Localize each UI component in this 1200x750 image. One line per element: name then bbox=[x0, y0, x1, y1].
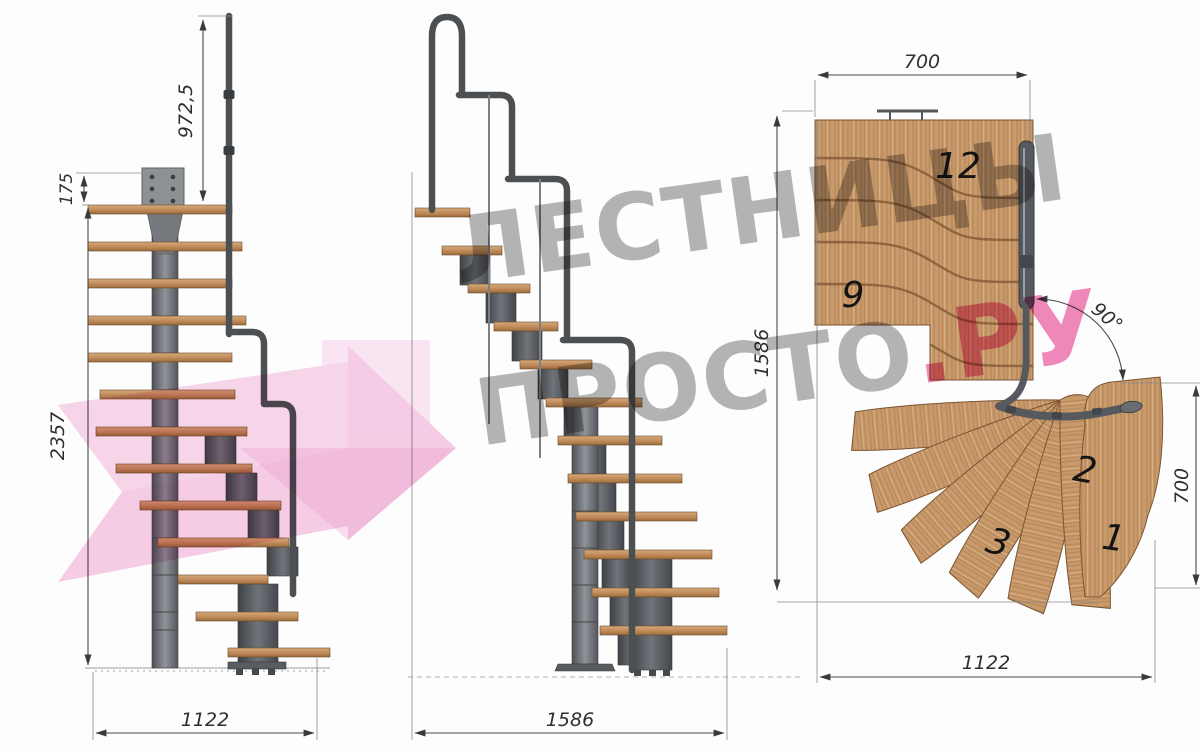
rail-collar bbox=[224, 146, 235, 155]
rail-collar bbox=[224, 90, 235, 99]
staircase-technical-drawing: 972,5 175 2357 1122 bbox=[0, 0, 1200, 750]
dim-label: 1586 bbox=[546, 709, 594, 731]
dim-label: 1122 bbox=[181, 709, 229, 731]
base-flange bbox=[228, 662, 286, 669]
drawing-layer: 972,5 175 2357 1122 bbox=[0, 0, 1200, 750]
dim-label: 90° bbox=[1087, 298, 1127, 337]
top-mount-plate bbox=[142, 168, 184, 208]
handrail-joint bbox=[1020, 255, 1033, 268]
handrail-arch bbox=[432, 17, 462, 210]
plan-view: 12 9 2 3 1 700 1586 700 1122 bbox=[751, 51, 1200, 683]
handrail-segment bbox=[459, 95, 512, 176]
plan-handrail-post bbox=[1019, 141, 1034, 309]
lateral-elevation-view: 1586 bbox=[408, 17, 800, 740]
dim-turn-angle: 90° bbox=[1037, 298, 1127, 380]
dim-base-width-lateral: 1586 bbox=[415, 648, 727, 740]
handrail-segment bbox=[508, 179, 567, 337]
step-label-9: 9 bbox=[842, 275, 865, 316]
wall-bracket bbox=[877, 111, 938, 120]
bottom-module-stack bbox=[630, 556, 672, 670]
dim-label: 175 bbox=[57, 173, 77, 205]
base-feet bbox=[634, 670, 670, 676]
dim-label: 972,5 bbox=[175, 84, 197, 138]
step-label-12: 12 bbox=[935, 146, 981, 187]
front-elevation-view: 972,5 175 2357 1122 bbox=[47, 16, 330, 740]
pole-flange bbox=[555, 664, 615, 671]
dim-label: 700 bbox=[904, 51, 940, 73]
dim-label: 1586 bbox=[751, 329, 773, 377]
dim-plate-offset: 175 bbox=[57, 173, 146, 205]
base-feet bbox=[236, 669, 275, 675]
dim-total-height: 2357 bbox=[47, 205, 92, 665]
dim-label: 700 bbox=[1171, 468, 1193, 504]
dim-label: 2357 bbox=[47, 412, 69, 460]
dim-label: 1122 bbox=[962, 652, 1010, 674]
